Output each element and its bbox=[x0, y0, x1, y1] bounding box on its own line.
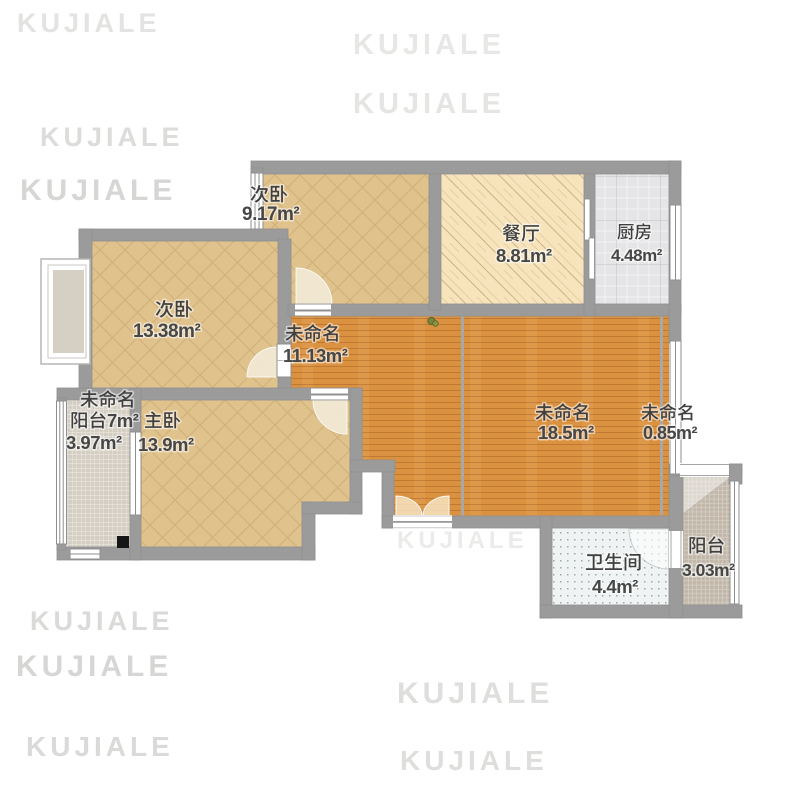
svg-text:KUJIALE: KUJIALE bbox=[20, 174, 176, 207]
svg-text:4.48m²: 4.48m² bbox=[611, 246, 663, 265]
svg-text:KUJIALE: KUJIALE bbox=[40, 122, 184, 152]
svg-text:9.17m²: 9.17m² bbox=[242, 204, 299, 225]
svg-text:KUJIALE: KUJIALE bbox=[16, 650, 172, 683]
svg-text:KUJIALE: KUJIALE bbox=[353, 29, 505, 61]
svg-text:7m²: 7m² bbox=[107, 410, 139, 431]
svg-text:KUJIALE: KUJIALE bbox=[397, 527, 528, 554]
svg-text:KUJIALE: KUJIALE bbox=[353, 88, 505, 120]
svg-text:KUJIALE: KUJIALE bbox=[397, 677, 553, 710]
svg-text:13.38m²: 13.38m² bbox=[133, 321, 200, 342]
svg-text:3.03m²: 3.03m² bbox=[682, 560, 735, 580]
svg-text:KUJIALE: KUJIALE bbox=[400, 745, 548, 776]
svg-text:3.97m²: 3.97m² bbox=[66, 432, 122, 453]
svg-text:KUJIALE: KUJIALE bbox=[30, 606, 174, 636]
svg-text:11.13m²: 11.13m² bbox=[283, 345, 348, 366]
svg-text:18.5m²: 18.5m² bbox=[538, 422, 594, 443]
svg-text:KUJIALE: KUJIALE bbox=[26, 731, 174, 762]
svg-text:0.85m²: 0.85m² bbox=[643, 423, 698, 443]
svg-text:13.9m²: 13.9m² bbox=[138, 434, 194, 455]
svg-text:8.81m²: 8.81m² bbox=[496, 245, 552, 266]
svg-text:KUJIALE: KUJIALE bbox=[17, 8, 161, 38]
svg-text:4.4m²: 4.4m² bbox=[592, 576, 638, 597]
